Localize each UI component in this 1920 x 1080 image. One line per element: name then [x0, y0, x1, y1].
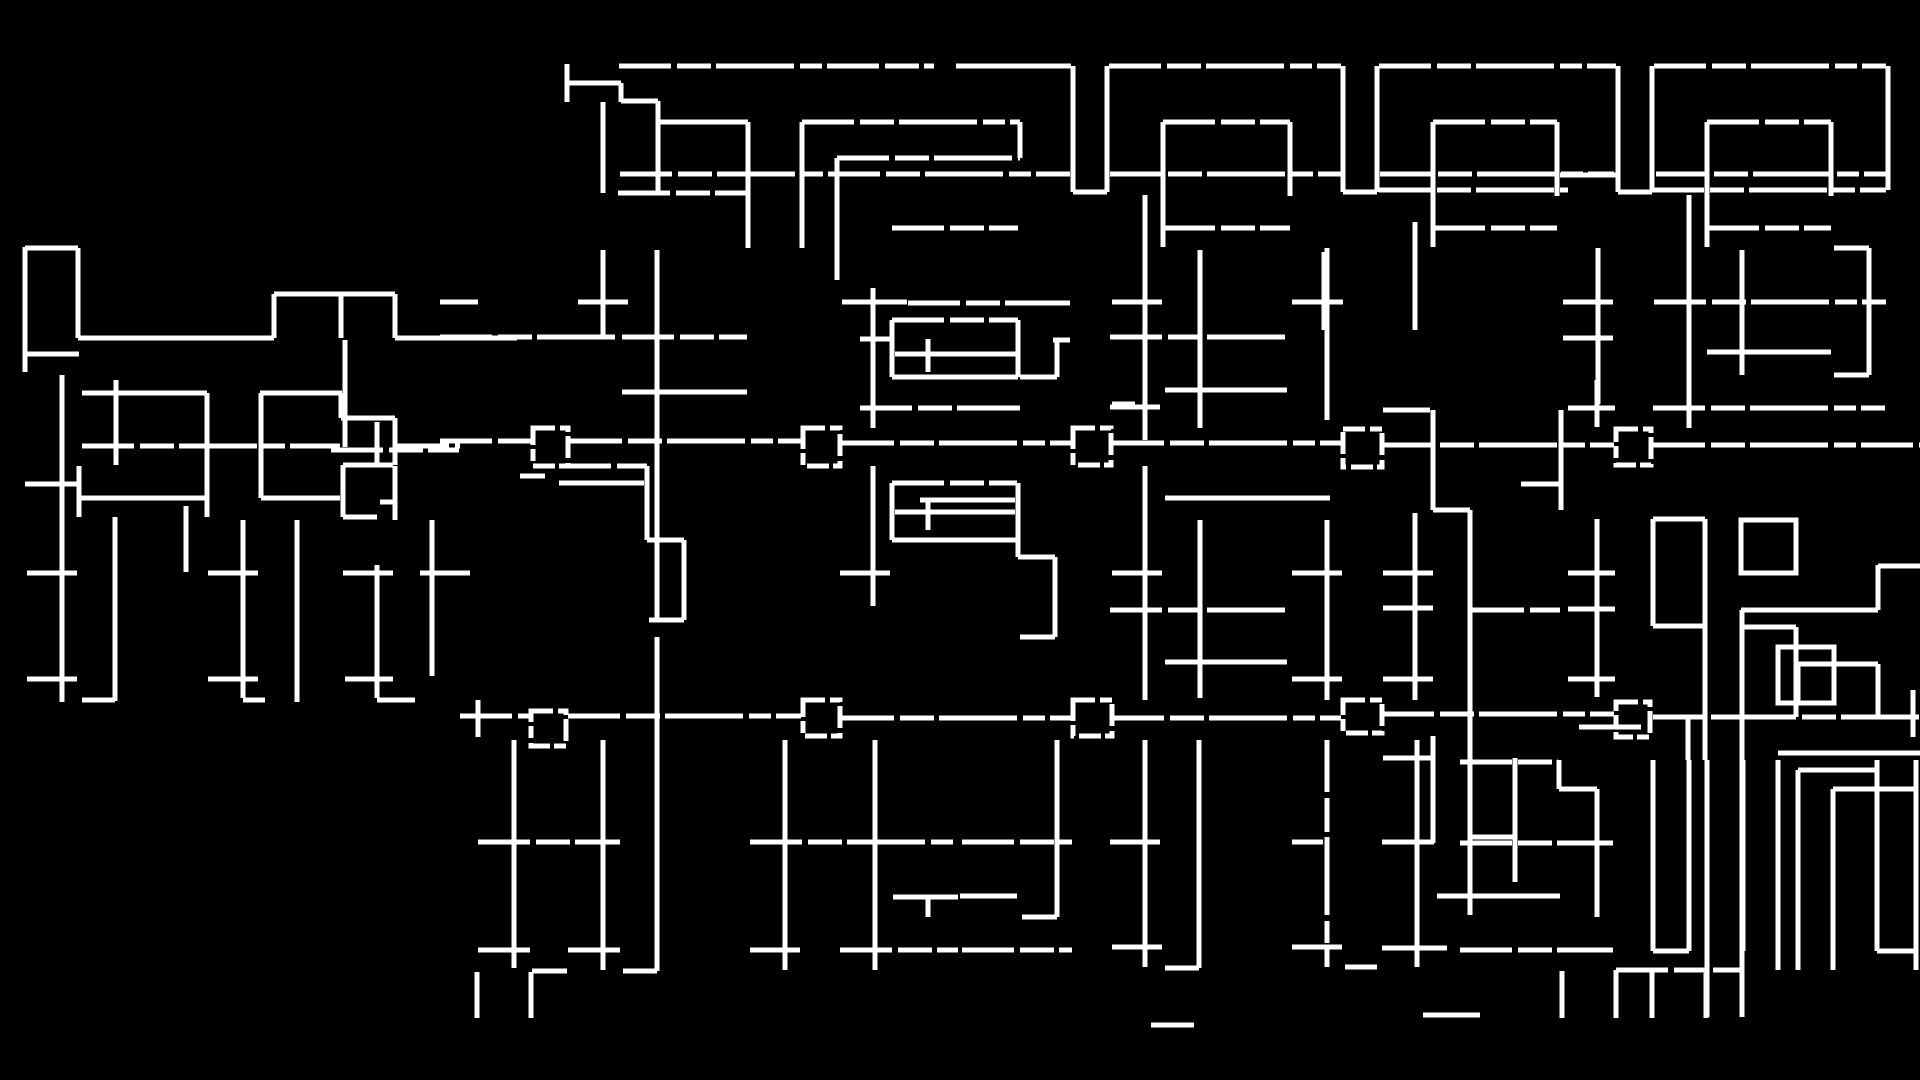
- junction-box: [803, 428, 840, 466]
- dungeon-map-screen: [0, 0, 1920, 1080]
- junction-box: [1616, 702, 1650, 737]
- junction-box: [1073, 700, 1112, 736]
- room-box: [1741, 520, 1796, 573]
- junction-box: [1343, 429, 1382, 467]
- room-box: [1798, 664, 1834, 703]
- junction-box: [531, 711, 566, 746]
- maze-wireframe-svg: [0, 0, 1920, 1080]
- room-box: [1778, 647, 1834, 703]
- junction-box: [1073, 428, 1111, 465]
- junction-box: [1616, 429, 1651, 465]
- junction-box: [533, 428, 568, 466]
- junction-box: [803, 700, 840, 736]
- junction-box: [1343, 700, 1382, 733]
